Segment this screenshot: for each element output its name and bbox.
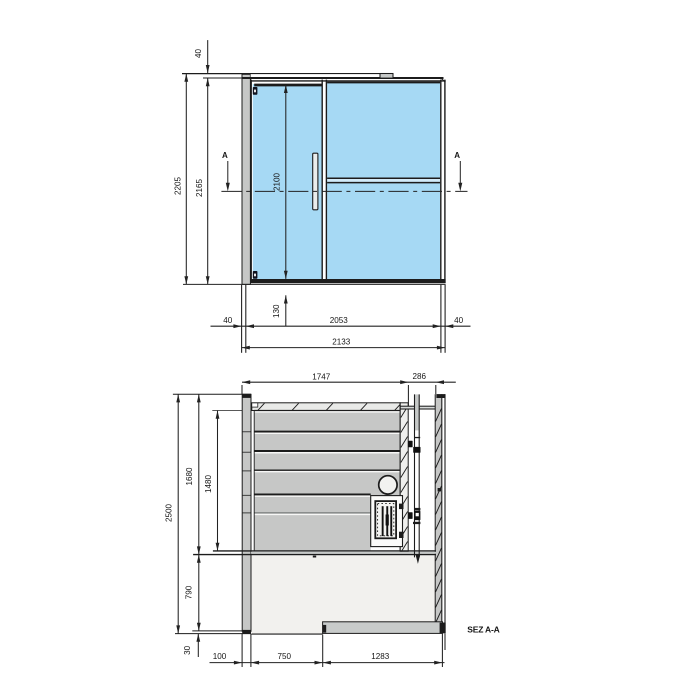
svg-text:30: 30 (183, 645, 192, 655)
svg-text:286: 286 (412, 372, 426, 381)
svg-text:40: 40 (194, 49, 203, 59)
svg-text:1283: 1283 (371, 652, 390, 661)
svg-text:1747: 1747 (312, 372, 331, 381)
svg-text:750: 750 (278, 652, 292, 661)
svg-text:100: 100 (213, 652, 227, 661)
svg-text:2205: 2205 (174, 177, 183, 196)
svg-text:A: A (454, 151, 460, 160)
svg-text:2133: 2133 (332, 338, 351, 347)
svg-text:40: 40 (454, 316, 464, 325)
svg-text:790: 790 (184, 585, 193, 599)
svg-text:2100: 2100 (273, 173, 282, 192)
svg-text:A: A (222, 151, 228, 160)
svg-text:40: 40 (223, 316, 233, 325)
svg-text:SEZ A-A: SEZ A-A (467, 624, 499, 634)
svg-text:2165: 2165 (195, 179, 204, 198)
svg-text:2500: 2500 (164, 504, 173, 523)
svg-text:2053: 2053 (330, 316, 349, 325)
svg-text:130: 130 (272, 304, 281, 318)
svg-text:1680: 1680 (185, 467, 194, 486)
svg-text:1480: 1480 (204, 475, 213, 494)
